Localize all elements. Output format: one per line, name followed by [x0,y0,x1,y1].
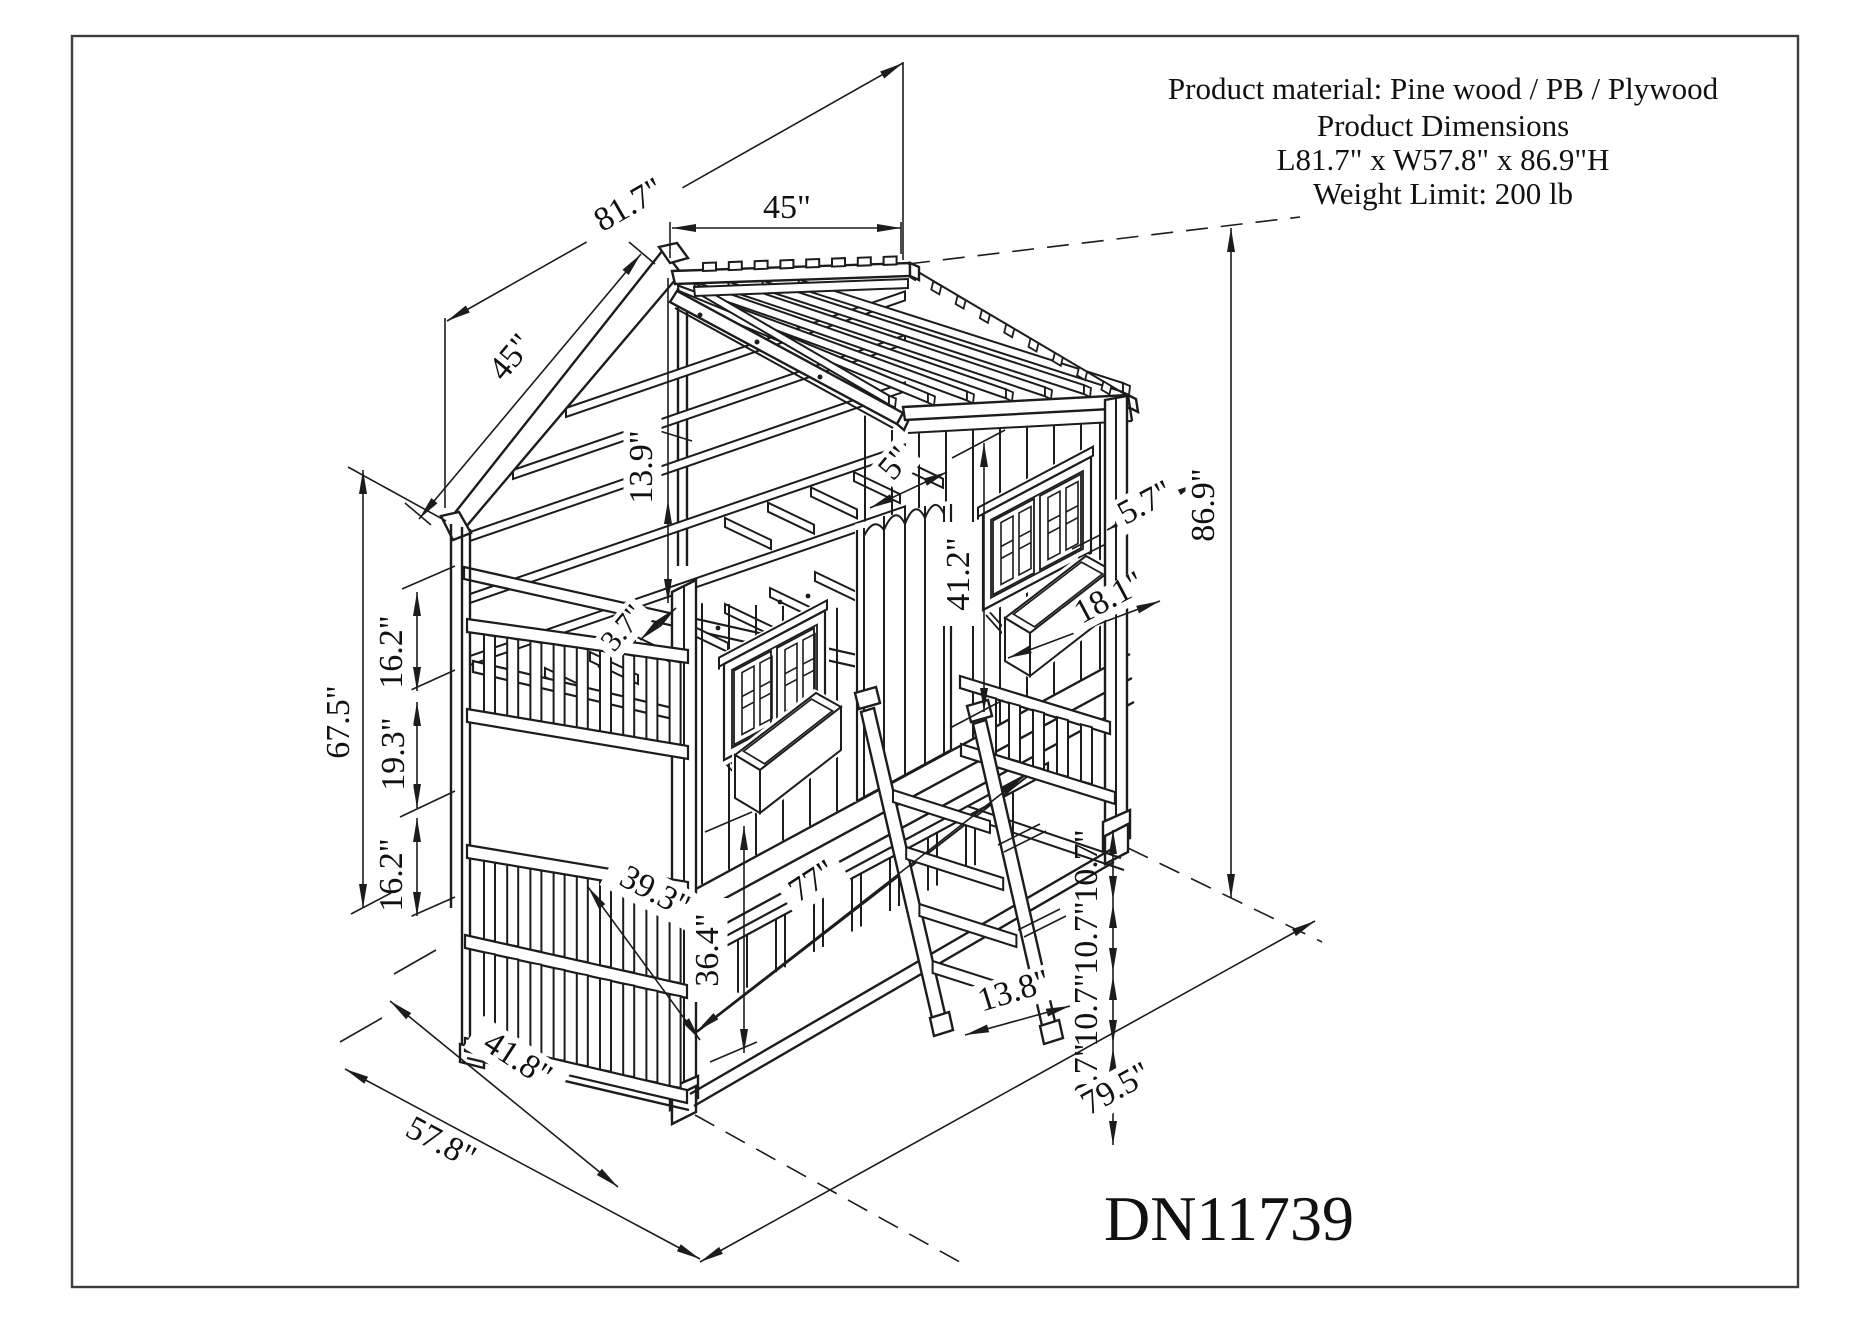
svg-text:16.2": 16.2" [373,838,410,911]
svg-text:86.9": 86.9" [1185,468,1222,541]
svg-text:67.5": 67.5" [320,685,357,758]
svg-text:L81.7" x W57.8" x 86.9"H: L81.7" x W57.8" x 86.9"H [1277,142,1610,177]
svg-text:41.2": 41.2" [940,537,977,610]
svg-text:16.2": 16.2" [373,615,410,688]
svg-text:Weight Limit: 200 lb: Weight Limit: 200 lb [1313,176,1573,211]
svg-text:13.9": 13.9" [623,430,660,503]
svg-text:10.7": 10.7" [1068,901,1105,974]
svg-text:Product Dimensions: Product Dimensions [1317,108,1569,143]
svg-text:DN11739: DN11739 [1104,1183,1354,1254]
svg-text:36.4": 36.4" [689,913,726,986]
svg-text:Product material: Pine wood /: Product material: Pine wood / PB / Plywo… [1168,71,1719,106]
svg-text:10.7": 10.7" [1068,973,1105,1046]
svg-text:45": 45" [763,189,811,226]
svg-text:19.3": 19.3" [375,717,412,790]
svg-text:10.7": 10.7" [1068,829,1105,902]
